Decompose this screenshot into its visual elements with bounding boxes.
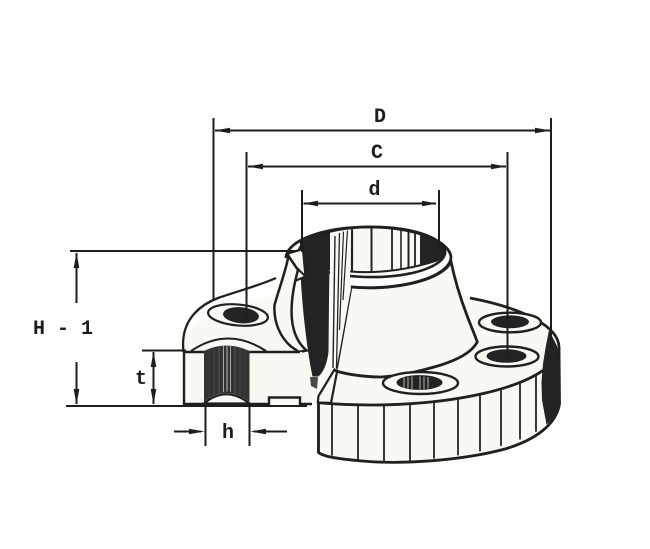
svg-text:t: t	[135, 368, 147, 391]
svg-text:h: h	[222, 422, 234, 445]
svg-text:D: D	[374, 106, 386, 129]
svg-text:d: d	[369, 179, 381, 202]
svg-text:H - 1: H - 1	[33, 318, 93, 341]
svg-text:C: C	[371, 142, 383, 165]
